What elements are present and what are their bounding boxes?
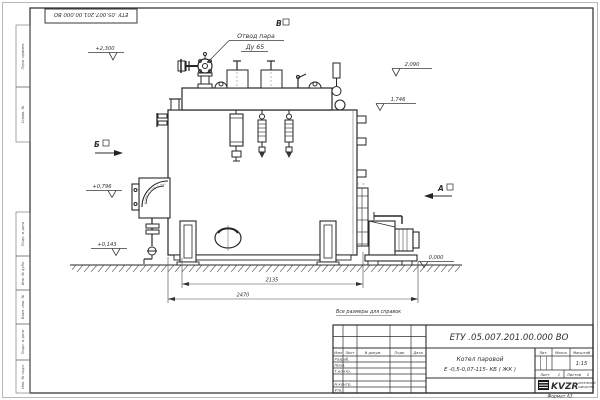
col-podp: Подп. xyxy=(395,351,406,355)
svg-text:Все размеры для справок: Все размеры для справок xyxy=(336,309,401,315)
scale-value: 1:15 xyxy=(576,361,588,367)
steam-outlet-callout: Отвод пара Ду 65 xyxy=(207,33,284,63)
svg-text:А: А xyxy=(437,184,444,193)
lifting-eye xyxy=(335,100,345,110)
col-list: Лист xyxy=(344,351,355,355)
doc-number: ЕТУ .05.007.201.00.000 ВО xyxy=(450,333,569,343)
lever-valve xyxy=(297,74,307,88)
boiler-drawing-svg: Перв. примен. Справ. № Подп. и дата Инв.… xyxy=(0,0,600,400)
row-razrab: Разраб. xyxy=(335,357,350,362)
svg-text:+0,796: +0,796 xyxy=(92,184,112,190)
mass-label: Масса xyxy=(555,351,566,355)
safety-valve-1 xyxy=(227,61,248,88)
level-gauge-2 xyxy=(285,110,293,158)
svg-text:0,000: 0,000 xyxy=(429,255,445,261)
svg-text:Б: Б xyxy=(94,140,100,149)
top-left-stub xyxy=(169,99,181,110)
sheets-value: 2 xyxy=(587,372,590,377)
margin-label-sprav: Справ. № xyxy=(21,105,25,123)
margin-label-perv-primen: Перв. примен. xyxy=(21,43,25,70)
dim-upper-value: 2135 xyxy=(266,278,279,284)
row-prov: Пров. xyxy=(335,363,346,368)
margin-label-inv-podl: Инв. № подл. xyxy=(21,364,25,389)
col-izm: Изм xyxy=(334,351,342,355)
sheets-label: Листов xyxy=(566,372,582,377)
col-data: Дата xyxy=(412,351,422,355)
dimension-lower: 2470 xyxy=(168,293,418,302)
elbow-assembly xyxy=(132,178,170,264)
margin-label-podp-data-1: Подп. и дата xyxy=(21,222,25,246)
elevation-plus0796: +0,796 xyxy=(86,184,122,198)
margin-label-vzam-inv: Взам. инв. № xyxy=(21,295,25,320)
scale-label: Масштаб xyxy=(573,351,591,355)
svg-text:2,090: 2,090 xyxy=(405,62,421,68)
steam-drum xyxy=(182,88,345,110)
top-stamp-number: ЕТУ .05.007.201.00.000 ВО xyxy=(53,11,128,17)
kvzr-logo-sub2: ЗАВОД РЭП xyxy=(578,385,594,389)
fan-unit xyxy=(365,212,419,265)
product-name-line2: Е -0,5-0,07-115- КБ ( ЖК ) xyxy=(444,367,516,373)
kvzr-logo-text: KVZR xyxy=(551,382,578,392)
elevation-2090: 2,090 xyxy=(392,62,432,76)
left-wall-nozzles xyxy=(157,113,167,127)
row-nkontr: Н.контр. xyxy=(335,382,352,387)
margin-stamps: Перв. примен. Справ. № Подп. и дата Инв.… xyxy=(16,25,30,393)
margin-label-inv-dubl: Инв. № дубл. xyxy=(21,261,25,286)
callout-text-line1: Отвод пара xyxy=(237,33,275,40)
steam-outlet-valve xyxy=(178,53,212,89)
elevation-plus2300: +2,300 xyxy=(88,46,124,60)
kvzr-logo: KVZR КОТЕЛЬНЫЙ ЗАВОД РЭП xyxy=(538,380,595,392)
svg-text:В: В xyxy=(276,19,282,28)
elevation-1746: 1,746 xyxy=(376,97,416,111)
reference-note: Все размеры для справок xyxy=(336,309,401,316)
view-marker-a: А xyxy=(424,184,453,199)
dim-lower-value: 2470 xyxy=(237,293,250,299)
level-gauge-1 xyxy=(258,110,266,158)
sheet-value: 1 xyxy=(558,372,560,377)
row-tkontr: Т.контр. xyxy=(335,369,351,374)
view-marker-b: Б xyxy=(94,140,123,156)
water-column xyxy=(230,110,243,161)
pressure-gauge xyxy=(332,63,341,96)
row-utv: Утв. xyxy=(335,388,343,393)
sheet-label: Лист xyxy=(539,372,550,377)
elevation-plus0143: +0,143 xyxy=(91,242,127,256)
right-wall-fittings xyxy=(357,116,368,246)
margin-label-podp-data-2: Подп. и дата xyxy=(21,330,25,354)
lit-label: Лит. xyxy=(538,351,547,355)
top-stamp: ЕТУ .05.007.201.00.000 ВО xyxy=(45,9,137,23)
product-name-line1: Котел паровой xyxy=(456,356,503,363)
col-ndoc: N докум. xyxy=(365,351,382,355)
title-block: ЕТУ .05.007.201.00.000 ВО Котел паровой … xyxy=(333,325,595,393)
svg-text:+2,300: +2,300 xyxy=(95,46,115,52)
format-note: Формат А3 xyxy=(547,394,572,400)
svg-text:+0,143: +0,143 xyxy=(97,242,116,248)
callout-text-line2: Ду 65 xyxy=(245,44,264,51)
view-marker-v: В xyxy=(276,19,289,28)
drawing-sheet: Перв. примен. Справ. № Подп. и дата Инв.… xyxy=(0,0,600,400)
svg-text:1,746: 1,746 xyxy=(391,97,407,103)
safety-valve-2 xyxy=(261,61,282,88)
dimension-upper: 2135 xyxy=(182,278,363,287)
ground-line xyxy=(70,265,462,273)
boiler-view xyxy=(70,53,462,274)
